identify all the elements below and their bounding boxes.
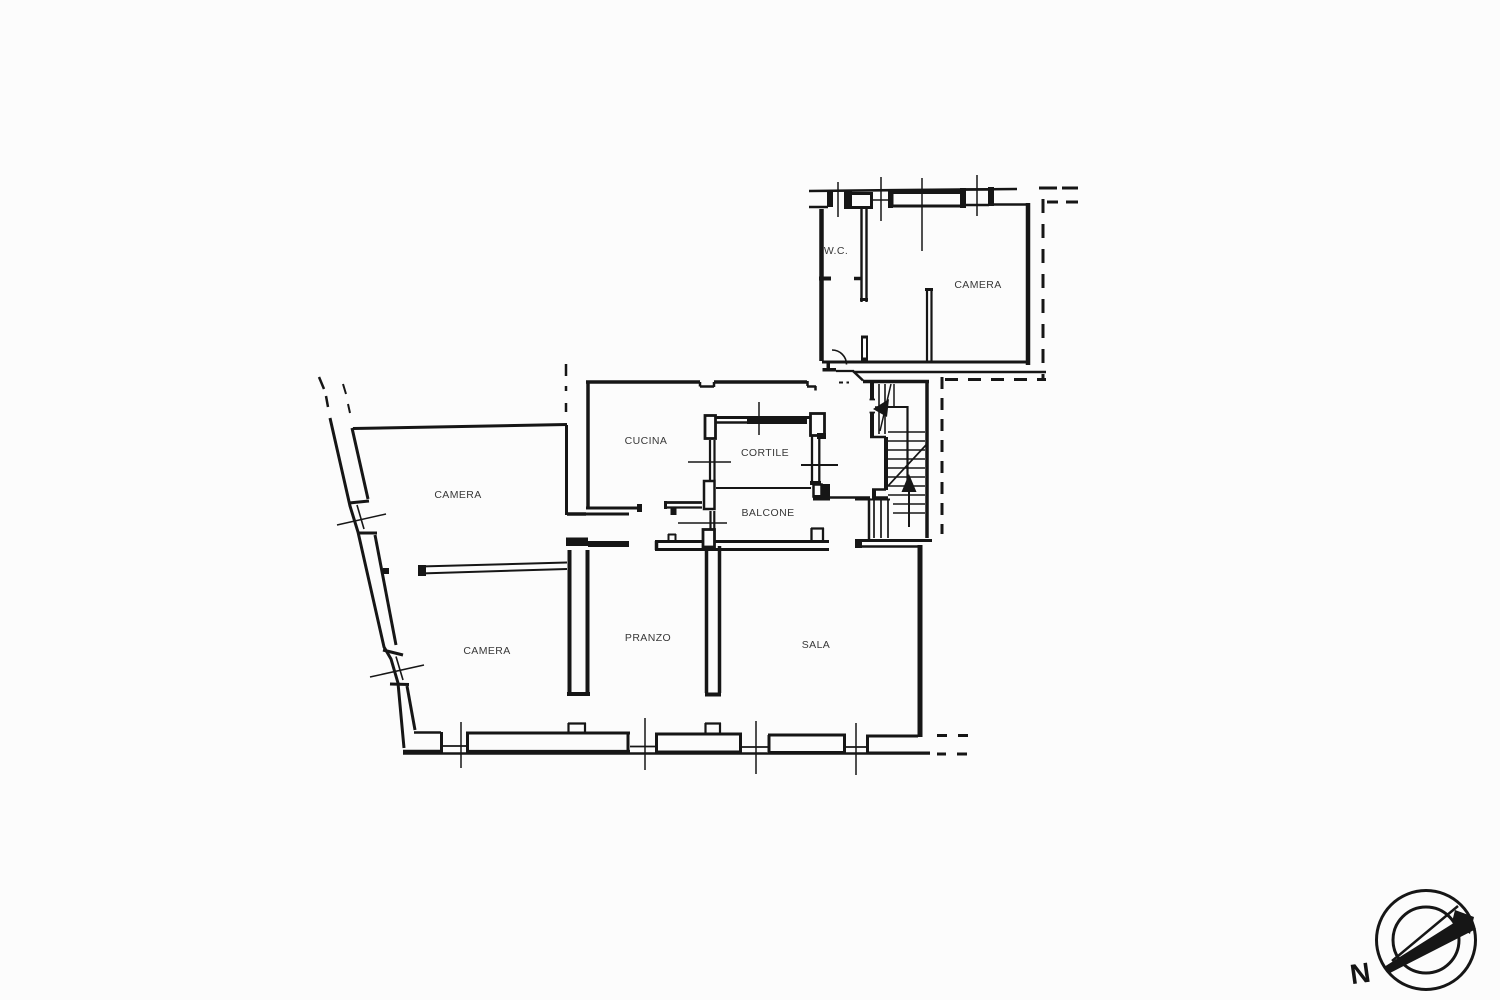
svg-text:CUCINA: CUCINA (625, 435, 668, 447)
svg-text:CAMERA: CAMERA (954, 279, 1001, 291)
svg-text:PRANZO: PRANZO (625, 632, 671, 644)
svg-text:W.C.: W.C. (824, 245, 848, 257)
svg-text:N: N (1348, 957, 1372, 991)
svg-text:SALA: SALA (802, 639, 830, 651)
svg-text:CORTILE: CORTILE (741, 447, 789, 459)
svg-text:BALCONE: BALCONE (742, 507, 795, 519)
svg-text:CAMERA: CAMERA (434, 489, 481, 501)
svg-text:CAMERA: CAMERA (463, 645, 510, 657)
